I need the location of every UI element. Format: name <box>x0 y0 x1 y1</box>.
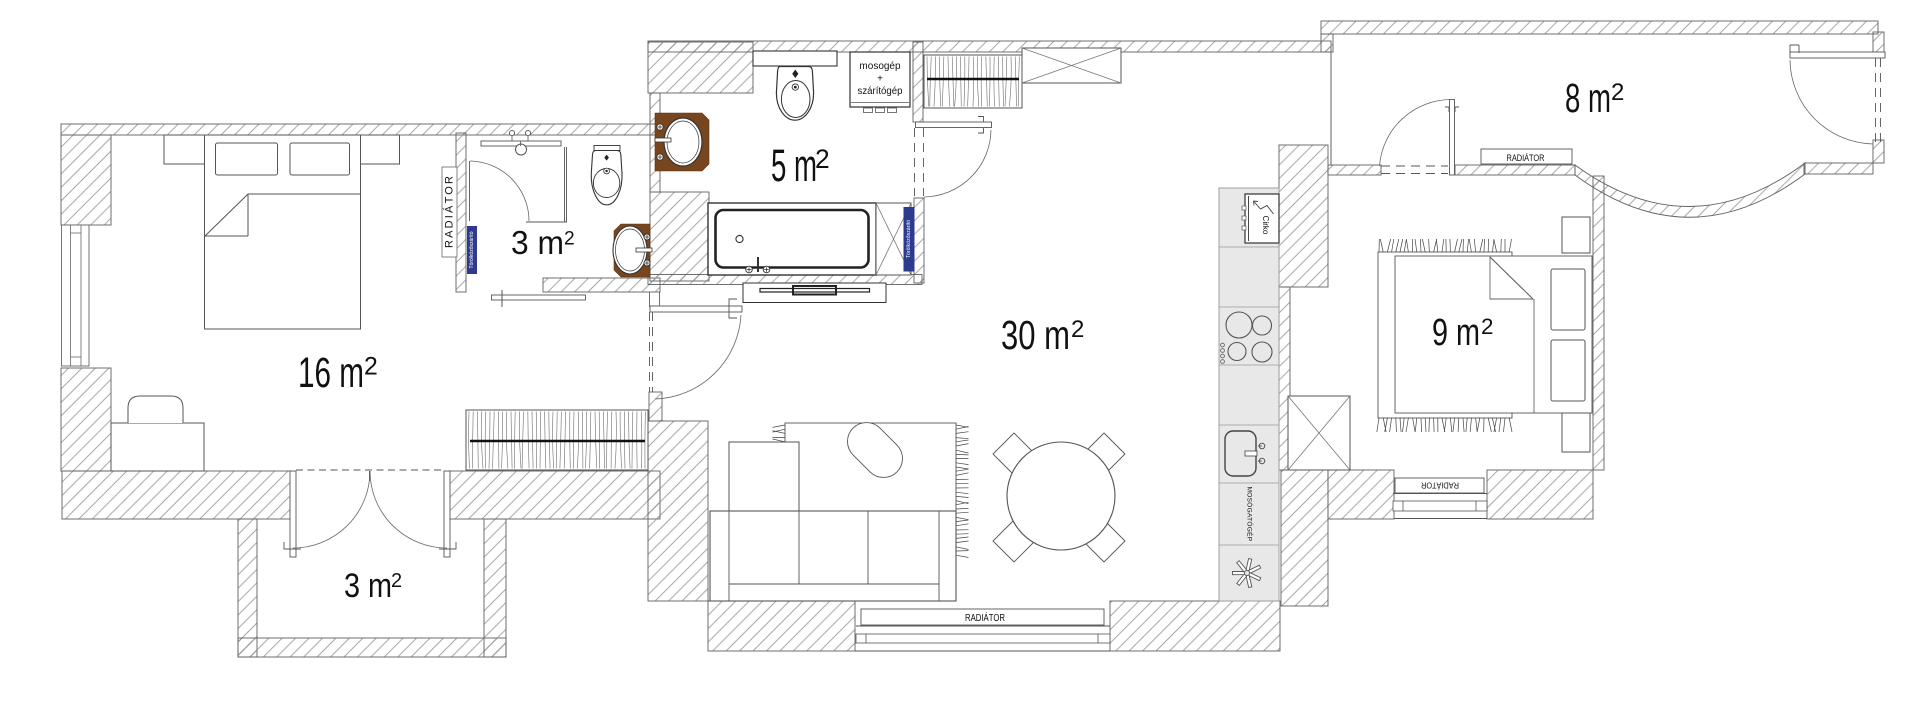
svg-text:2: 2 <box>815 144 830 174</box>
svg-text:8 m: 8 m <box>1565 75 1611 121</box>
svg-text:2: 2 <box>364 354 378 381</box>
svg-text:2: 2 <box>1071 316 1084 343</box>
svg-text:Törölközőszárító: Törölközőszárító <box>906 220 912 258</box>
svg-text:szárítógép: szárítógép <box>858 86 903 97</box>
svg-text:16 m: 16 m <box>298 350 364 397</box>
svg-text:Cirko: Cirko <box>1261 216 1270 235</box>
svg-text:2: 2 <box>1611 79 1624 106</box>
svg-text:3 m: 3 m <box>344 567 392 605</box>
svg-text:RADIÁTOR: RADIÁTOR <box>965 611 1005 624</box>
svg-text:3 m: 3 m <box>511 224 564 261</box>
svg-text:Törölközőszárító: Törölközőszárító <box>469 231 475 268</box>
svg-text:mosogép: mosogép <box>859 61 901 72</box>
svg-text:MOSÓGATÓGÉP: MOSÓGATÓGÉP <box>1246 487 1255 542</box>
svg-text:9 m: 9 m <box>1432 311 1480 354</box>
svg-text:5 m: 5 m <box>771 140 817 191</box>
svg-text:RADIÁTOR: RADIÁTOR <box>1507 153 1545 163</box>
svg-text:RADIÁTOR: RADIÁTOR <box>1421 481 1459 491</box>
svg-text:RADIÁTOR: RADIÁTOR <box>443 176 456 248</box>
svg-text:2: 2 <box>564 228 575 249</box>
svg-text:2: 2 <box>1481 314 1493 339</box>
svg-text:2: 2 <box>391 570 402 592</box>
svg-text:+: + <box>877 74 883 85</box>
svg-text:30 m: 30 m <box>1001 312 1070 358</box>
